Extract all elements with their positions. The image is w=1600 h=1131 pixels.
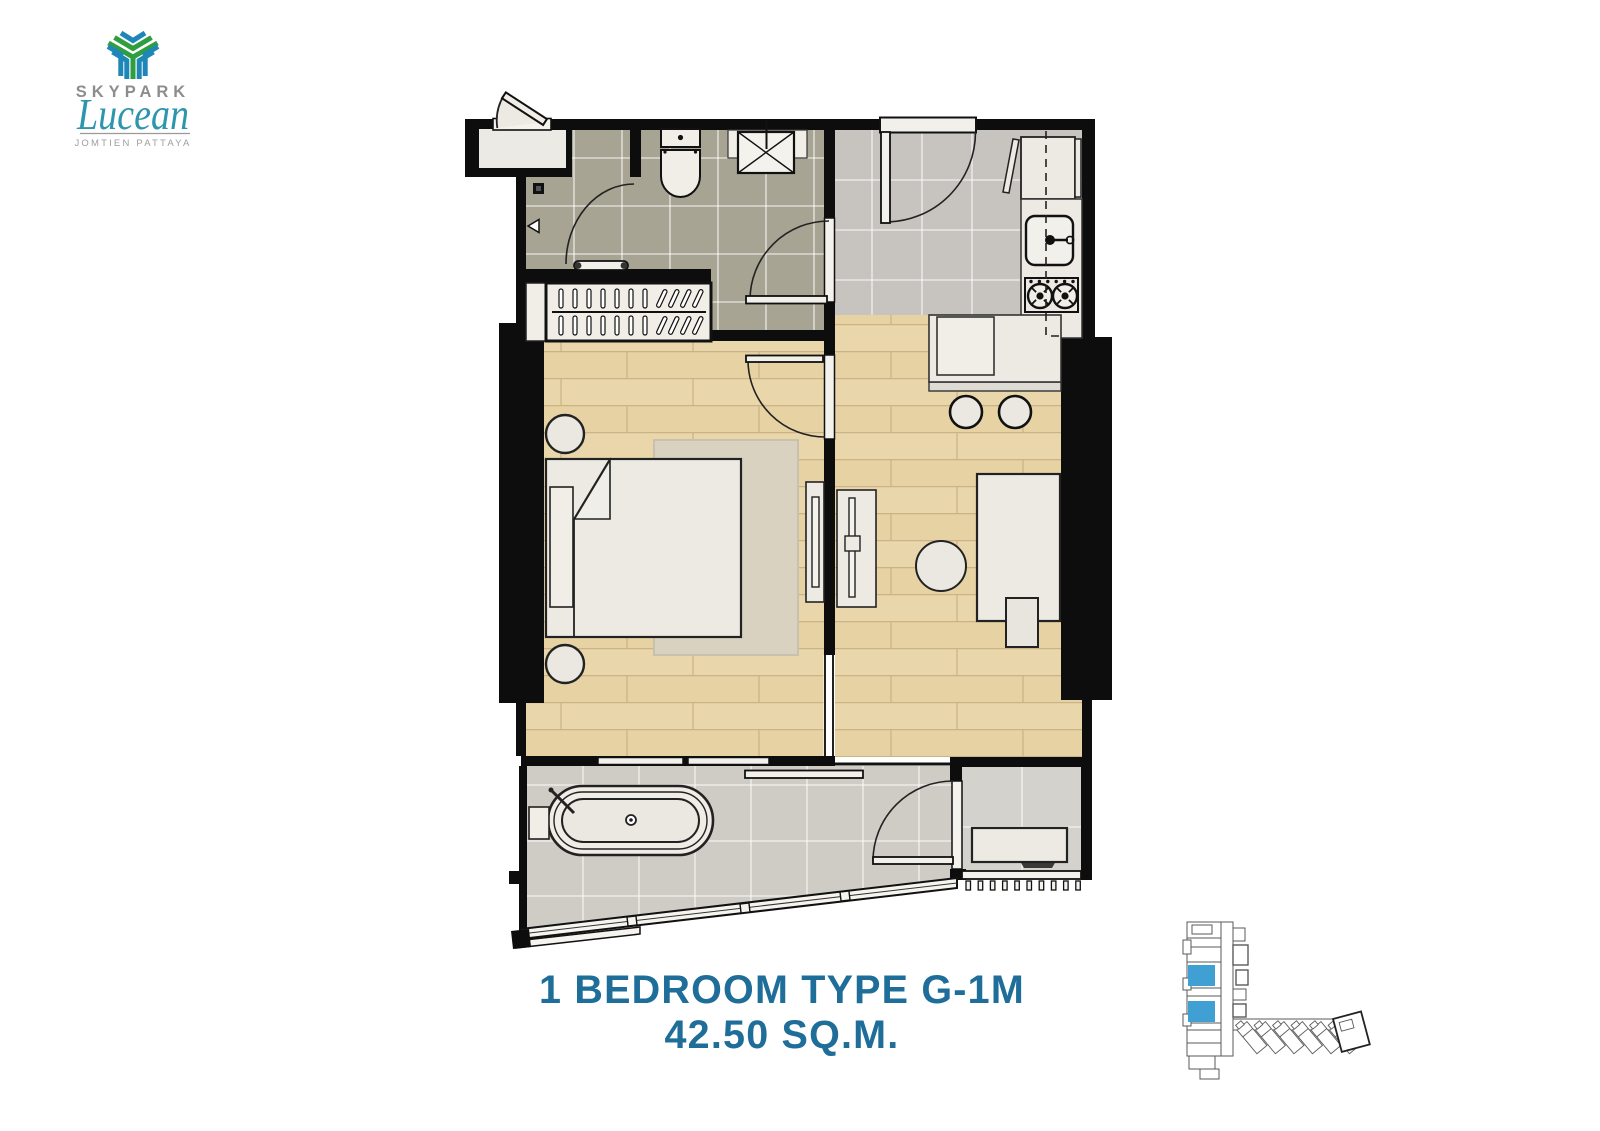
svg-text:42.50 SQ.M.: 42.50 SQ.M. <box>665 1013 900 1057</box>
svg-text:Lucean: Lucean <box>76 90 189 139</box>
svg-text:JOMTIEN PATTAYA: JOMTIEN PATTAYA <box>74 138 191 149</box>
svg-text:1 BEDROOM TYPE G-1M: 1 BEDROOM TYPE G-1M <box>539 968 1025 1012</box>
